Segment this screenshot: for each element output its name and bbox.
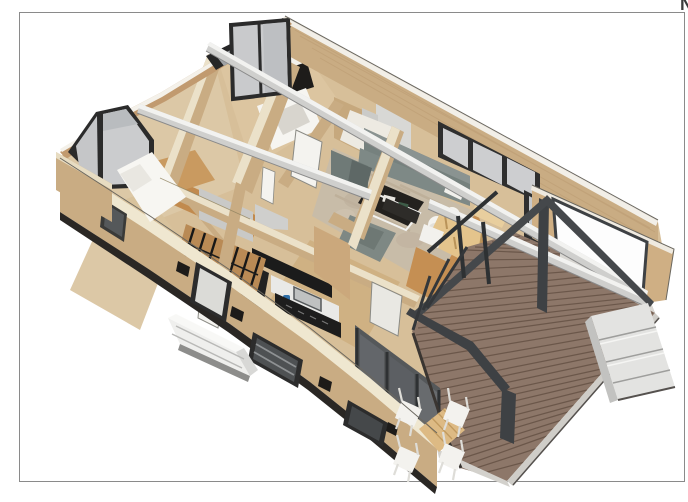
- svg-text:N: N: [680, 0, 688, 14]
